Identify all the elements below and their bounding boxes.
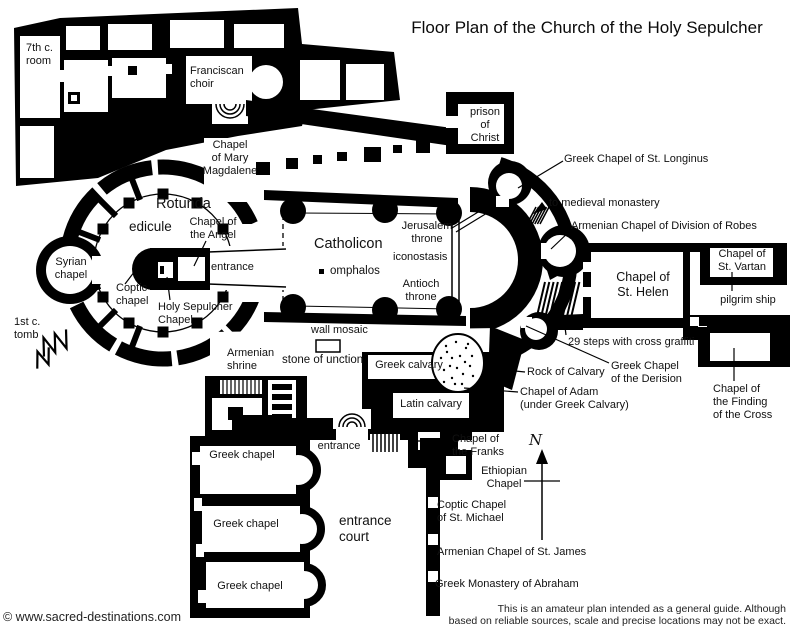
chapel-angel-chamber xyxy=(178,257,205,281)
chapel-finding-cross-shape xyxy=(698,327,790,367)
label-greek-monastery-abraham: Greek Monastery of Abraham xyxy=(435,578,579,591)
label-iconostasis: iconostasis xyxy=(393,251,447,264)
label-to-medieval-monastery: to medieval monastery xyxy=(549,197,660,210)
compass-north-label: N xyxy=(529,431,542,449)
floor-plan-page: Floor Plan of the Church of the Holy Sep… xyxy=(0,0,790,635)
label-coptic-chapel-st-michael: Coptic Chapel of St. Michael xyxy=(437,499,506,525)
label-omphalos: omphalos xyxy=(330,265,380,278)
label-greek-chapel-st-longinus: Greek Chapel of St. Longinus xyxy=(564,153,708,166)
label-chapel-finding-cross: Chapel of the Finding of the Cross xyxy=(713,383,772,422)
label-edicule-entrance: entrance xyxy=(211,261,254,274)
label-greek-chapel-2: Greek chapel xyxy=(194,518,298,531)
label-catholicon: Catholicon xyxy=(314,236,383,253)
label-pilgrim-ship: pilgrim ship xyxy=(710,294,786,307)
label-1st-c-tomb: 1st c. tomb xyxy=(14,316,40,342)
page-title: Floor Plan of the Church of the Holy Sep… xyxy=(388,18,786,38)
label-chapel-st-vartan: Chapel of St. Vartan xyxy=(708,248,776,274)
label-greek-calvary: Greek calvary xyxy=(370,359,448,372)
label-armenian-chapel-division-robes: Armenian Chapel of Division of Robes xyxy=(571,220,757,233)
label-jerusalem-throne: Jerusalem throne xyxy=(392,220,462,246)
label-wall-mosaic: wall mosaic xyxy=(311,324,368,337)
label-franciscan-choir: Franciscan choir xyxy=(190,65,244,91)
label-prison-of-christ: prison of Christ xyxy=(460,106,510,145)
label-coptic-chapel: Coptic chapel xyxy=(116,282,148,308)
label-entrance-court: entrance court xyxy=(339,513,392,545)
floor-plan-drawing xyxy=(0,0,790,635)
disclaimer-text: This is an amateur plan intended as a ge… xyxy=(420,603,786,628)
label-rotunda: Rotunda xyxy=(156,196,211,213)
label-holy-sepulcher-chapel: Holy Sepulcher Chapel xyxy=(158,301,233,327)
edicule-shape xyxy=(132,246,286,290)
label-greek-chapel-derision: Greek Chapel of the Derision xyxy=(611,360,682,386)
label-chapel-of-the-angel: Chapel of the Angel xyxy=(177,216,249,242)
label-armenian-shrine: Armenian shrine xyxy=(227,347,274,373)
label-greek-chapel-1: Greek chapel xyxy=(190,449,294,462)
label-ethiopian-chapel: Ethiopian Chapel xyxy=(470,465,538,491)
label-antioch-throne: Antioch throne xyxy=(388,278,454,304)
label-south-entrance: entrance xyxy=(308,440,370,453)
label-greek-chapel-3: Greek chapel xyxy=(198,580,302,593)
label-chapel-of-the-franks: Chapel of the Franks xyxy=(452,433,504,459)
stone-of-unction-marker xyxy=(316,340,340,352)
label-29-steps: 29 steps with cross graffiti xyxy=(568,336,694,349)
label-chapel-of-adam: Chapel of Adam (under Greek Calvary) xyxy=(520,386,629,412)
label-7th-c-room: 7th c. room xyxy=(26,42,53,68)
label-stone-of-unction: stone of unction xyxy=(282,354,363,367)
label-edicule: edicule xyxy=(129,219,172,235)
label-syrian-chapel: Syrian chapel xyxy=(40,256,102,282)
label-rock-of-calvary: Rock of Calvary xyxy=(527,366,605,379)
copyright-text: © www.sacred-destinations.com xyxy=(3,610,181,624)
omphalos-marker xyxy=(319,269,324,274)
label-armenian-chapel-st-james: Armenian Chapel of St. James xyxy=(437,546,586,559)
label-latin-calvary: Latin calvary xyxy=(394,398,468,411)
north-arrow-icon xyxy=(524,449,560,540)
label-chapel-mary-magdalene: Chapel of Mary Magdalene xyxy=(186,139,274,178)
label-chapel-st-helen: Chapel of St. Helen xyxy=(599,270,687,299)
apse-shape xyxy=(470,187,543,333)
